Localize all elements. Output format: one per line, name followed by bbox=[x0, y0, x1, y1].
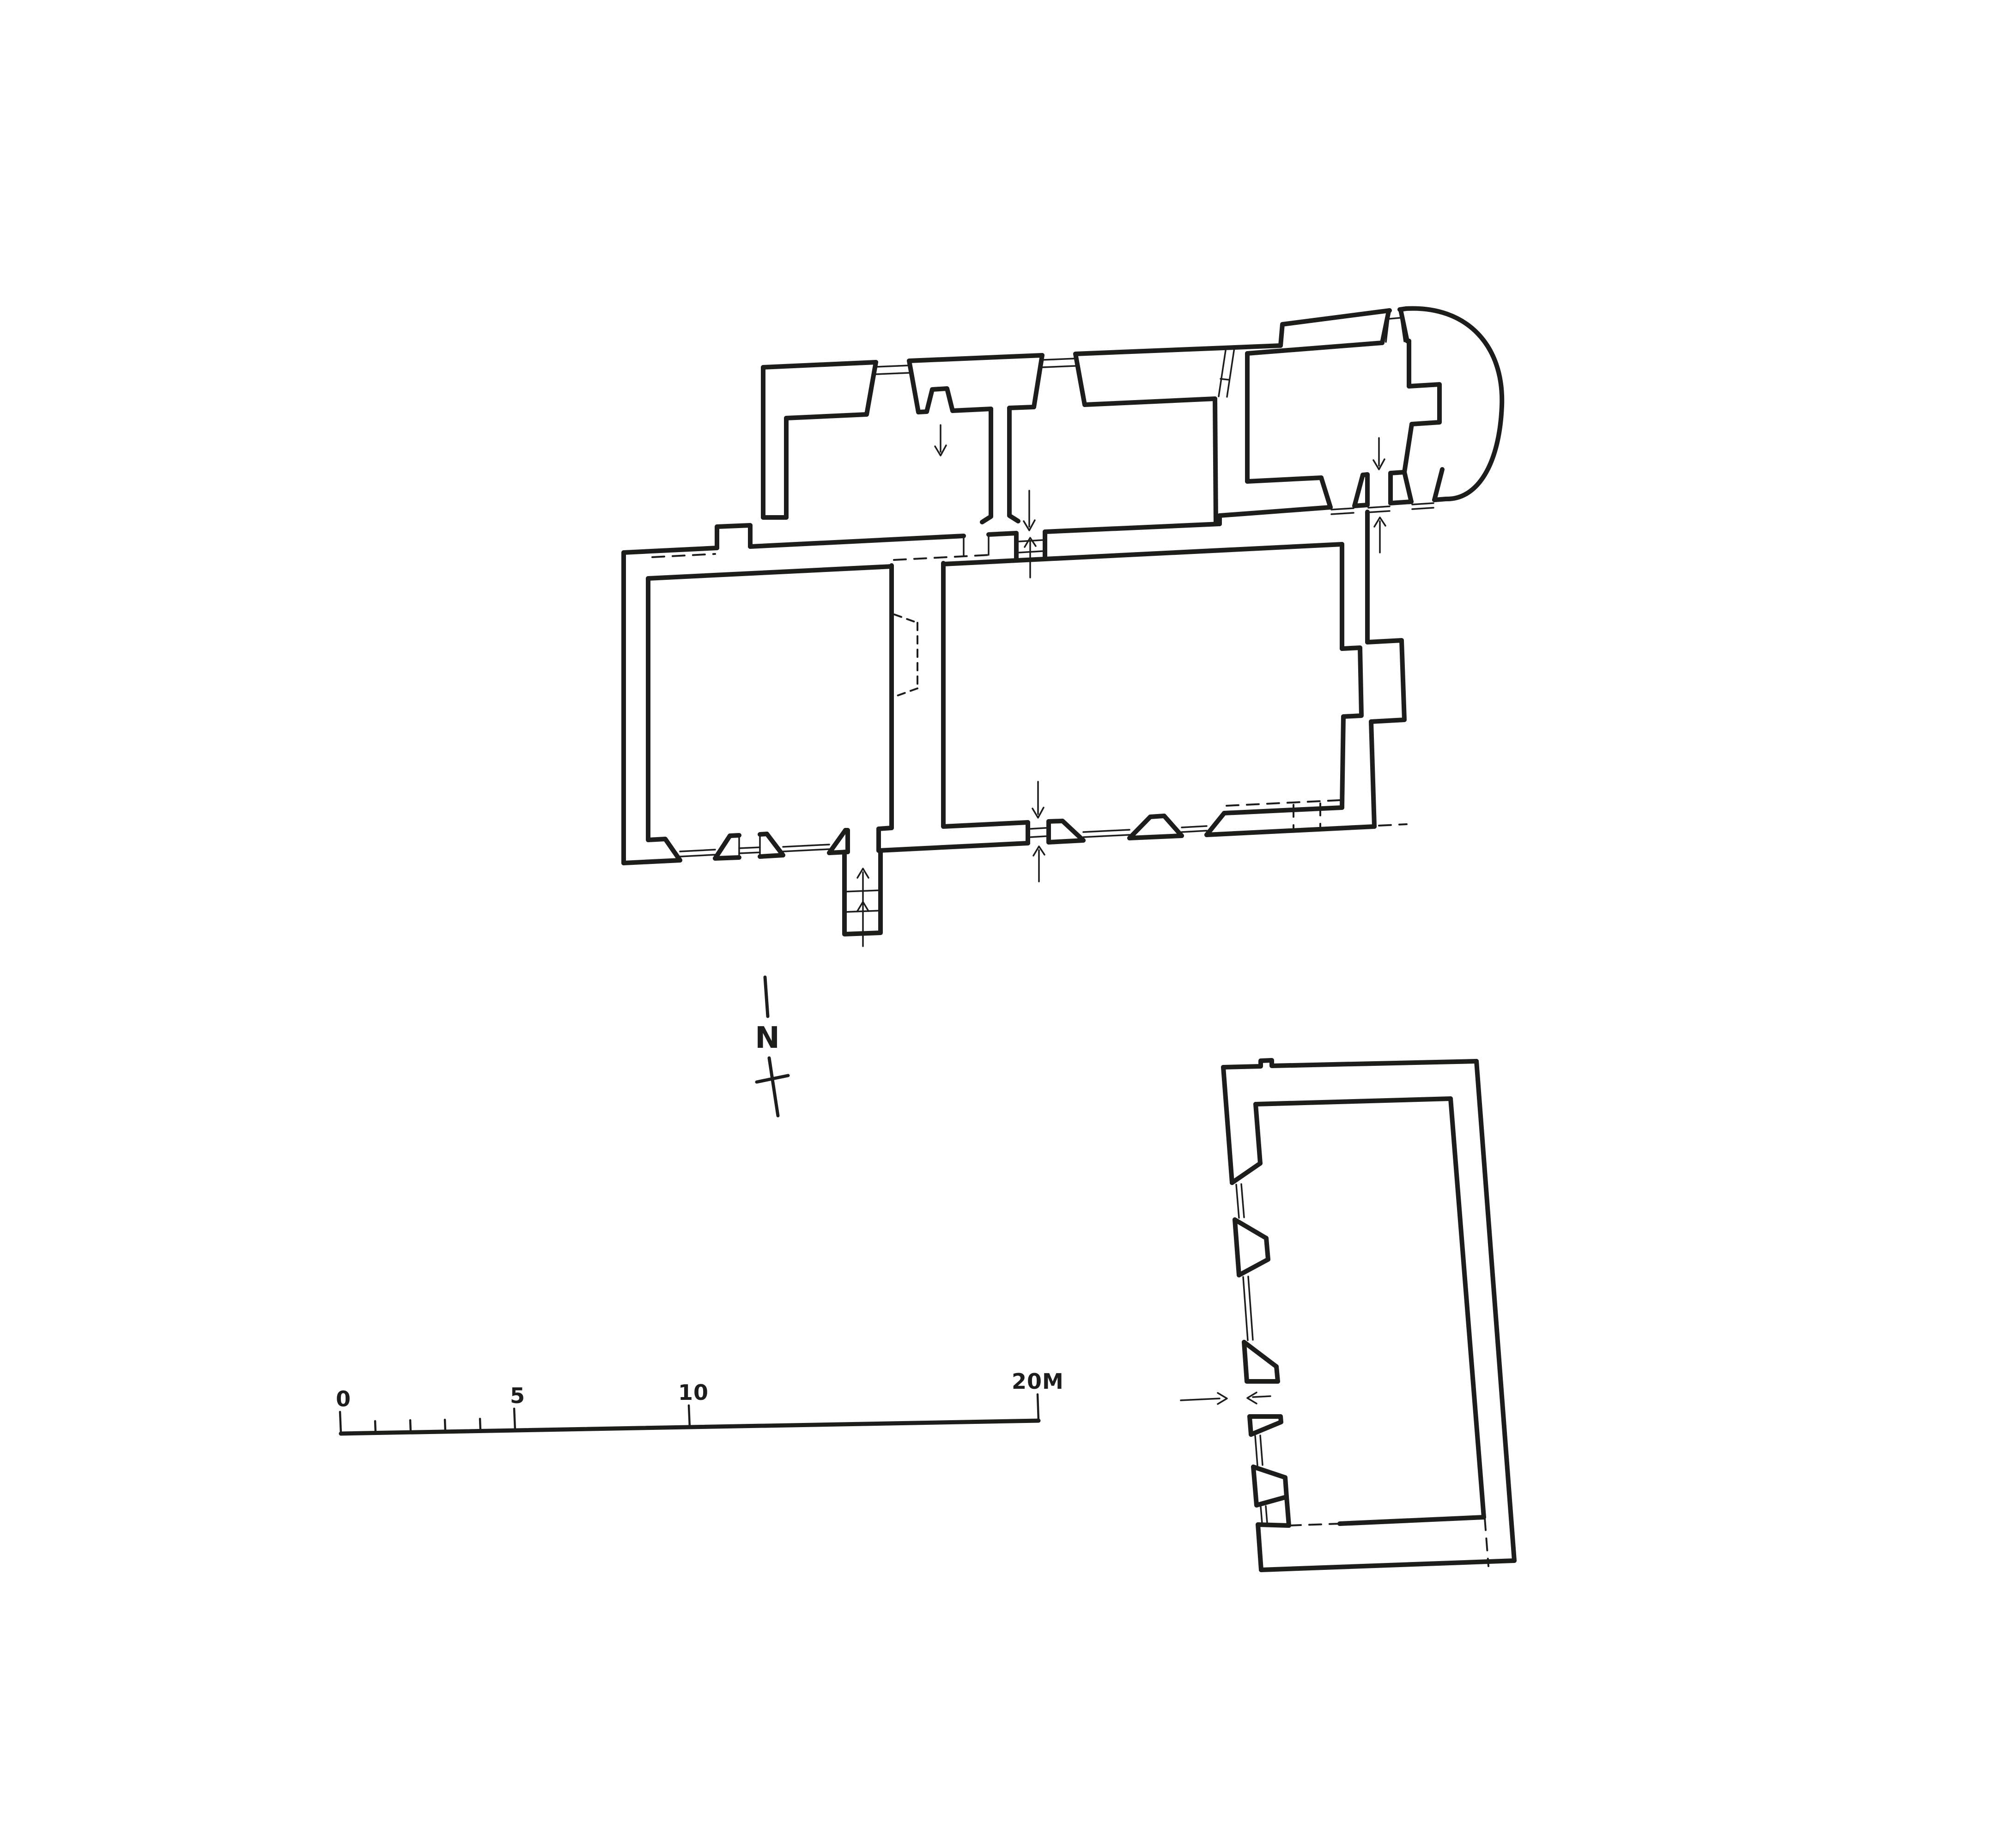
blocked-niche-dashed bbox=[894, 614, 917, 697]
outbuilding-plan bbox=[1181, 1060, 1514, 1570]
chancel-walls bbox=[1220, 309, 1502, 524]
scale-bar: 0 5 10 20M bbox=[336, 1369, 1064, 1434]
east-niche-recess bbox=[1342, 648, 1361, 717]
scale-label-0: 0 bbox=[336, 1386, 351, 1411]
pilaster bbox=[717, 525, 750, 548]
outbuilding-door-arrows bbox=[1181, 1392, 1270, 1404]
north-range-window-glazing bbox=[876, 347, 1234, 397]
outbuilding-walls bbox=[1223, 1060, 1514, 1570]
apse-wall bbox=[1406, 309, 1502, 499]
t-wall-right-face bbox=[1009, 408, 1018, 521]
floor-plan-canvas: N 0 5 10 20M bbox=[0, 0, 2004, 1848]
north-range-walls bbox=[763, 324, 1282, 523]
east-niche-projection bbox=[1367, 640, 1404, 722]
nave-walls bbox=[624, 512, 1404, 934]
outbuilding-dashed-lines bbox=[1289, 1518, 1488, 1566]
scale-label-5: 5 bbox=[510, 1383, 525, 1408]
pier-respond bbox=[927, 389, 953, 412]
north-label: N bbox=[755, 1021, 780, 1055]
altar-recess bbox=[1409, 384, 1439, 424]
dashed-lines bbox=[652, 554, 1407, 831]
north-wall-with-notch bbox=[1223, 1060, 1476, 1067]
t-wall-left-face bbox=[982, 409, 991, 522]
scale-label-20m: 20M bbox=[1012, 1369, 1064, 1394]
scale-label-10: 10 bbox=[678, 1380, 709, 1405]
north-arrow: N bbox=[755, 977, 788, 1116]
church-plan bbox=[624, 309, 1502, 946]
doorway-arrows bbox=[857, 425, 1385, 946]
drawing-sheet: N 0 5 10 20M bbox=[0, 0, 2004, 1848]
